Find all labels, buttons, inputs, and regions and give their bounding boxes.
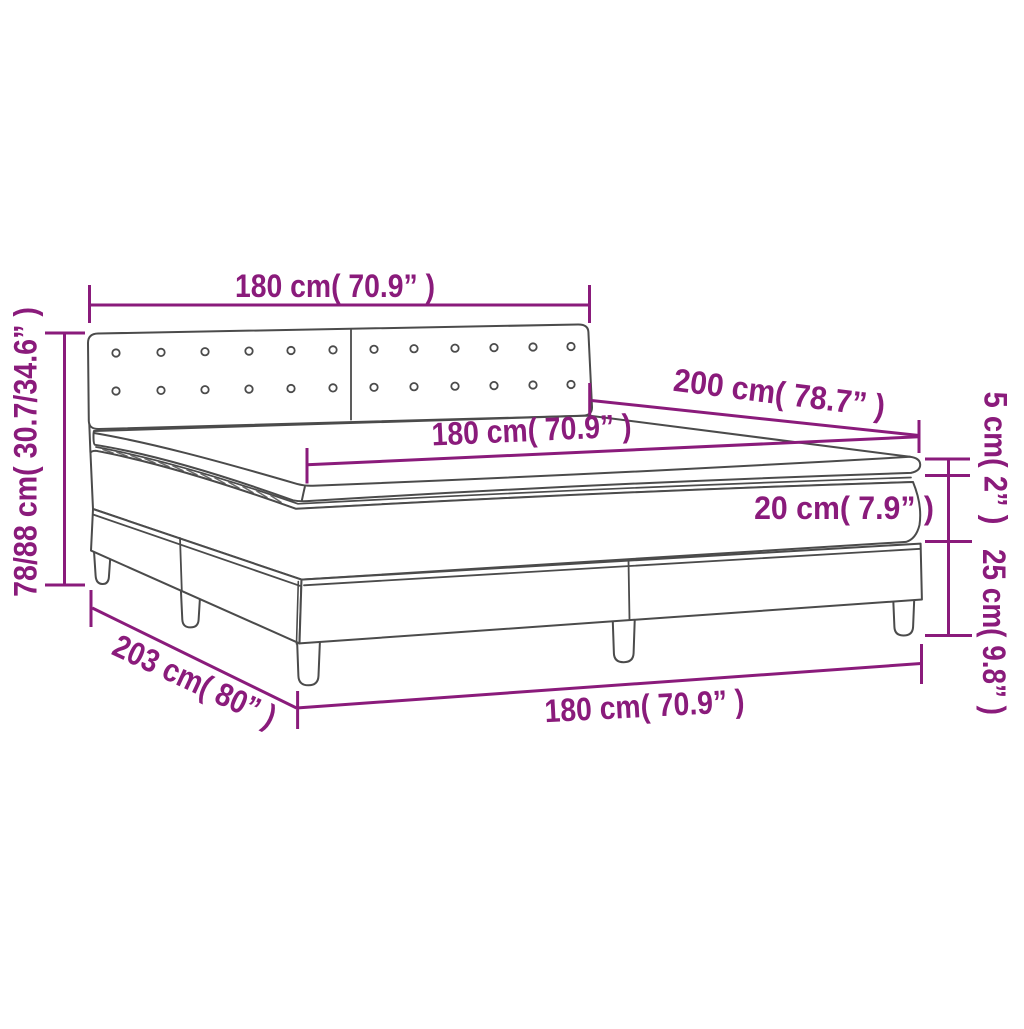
svg-text:180 cm( 70.9” ): 180 cm( 70.9” ) [235, 268, 435, 304]
svg-text:78/88 cm( 30.7/34.6” ): 78/88 cm( 30.7/34.6” ) [8, 307, 44, 597]
svg-text:20 cm( 7.9” ): 20 cm( 7.9” ) [754, 490, 934, 526]
svg-text:5 cm( 2” ): 5 cm( 2” ) [977, 392, 1014, 525]
svg-text:25 cm( 9.8” ): 25 cm( 9.8” ) [975, 549, 1010, 715]
